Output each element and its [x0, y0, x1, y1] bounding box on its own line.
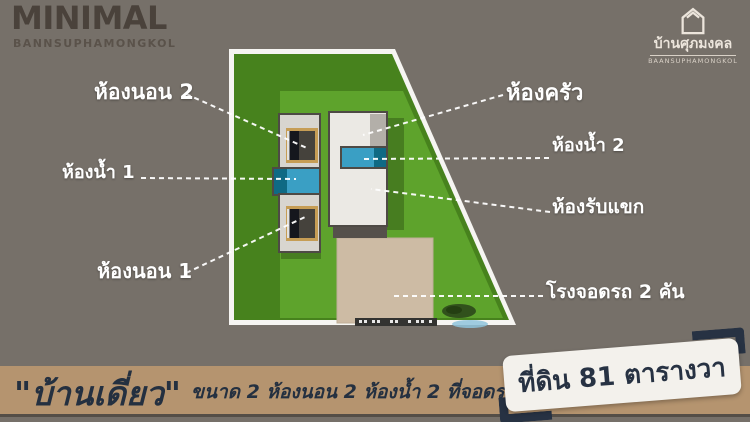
label-bedroom-1: ห้องนอน 1: [97, 258, 192, 285]
logo-divider: [650, 55, 736, 56]
house-step: [333, 226, 387, 238]
label-bedroom-2: ห้องนอน 2: [94, 78, 194, 106]
poster: MINIMAL BANNSUPHAMONGKOL บ้านศุภมงคล BAA…: [0, 0, 750, 422]
bathroom-2-room: [341, 147, 387, 168]
brand-title: MINIMAL: [11, 0, 167, 37]
label-garage: โรงจอดรถ 2 คัน: [546, 280, 684, 306]
house-spec-text: ขนาด 2 ห้องนอน 2 ห้องน้ำ 2 ที่จอดรถ: [191, 377, 516, 409]
house-shadow: [281, 252, 321, 259]
land-size-text: ที่ดิน 81 ตารางวา: [502, 338, 742, 412]
logo-latin-name: BAANSUPHAMONGKOL: [648, 57, 738, 65]
garage-pad: [337, 238, 433, 323]
land-size-badge: ที่ดิน 81 ตารางวา: [504, 347, 740, 403]
brand-subtitle: BANNSUPHAMONGKOL: [13, 37, 176, 50]
house-type-title: "บ้านเดี่ยว": [14, 378, 181, 409]
house-shadow: [387, 118, 404, 230]
bathroom-1-room: [273, 168, 320, 195]
label-kitchen: ห้องครัว: [506, 79, 583, 109]
footer-shadow: [0, 414, 750, 417]
pond: [452, 320, 488, 328]
label-bathroom-1: ห้องน้ำ 1: [62, 161, 135, 185]
bed-1: [286, 206, 318, 241]
label-living-room: ห้องรับแขก: [552, 195, 644, 221]
tree: [446, 306, 462, 314]
house-icon: [676, 3, 710, 35]
logo-thai-name: บ้านศุภมงคล: [654, 35, 732, 53]
label-bathroom-2: ห้องน้ำ 2: [552, 134, 625, 158]
driveway-gate: [355, 318, 437, 326]
company-logo: บ้านศุภมงคล BAANSUPHAMONGKOL: [643, 3, 743, 65]
